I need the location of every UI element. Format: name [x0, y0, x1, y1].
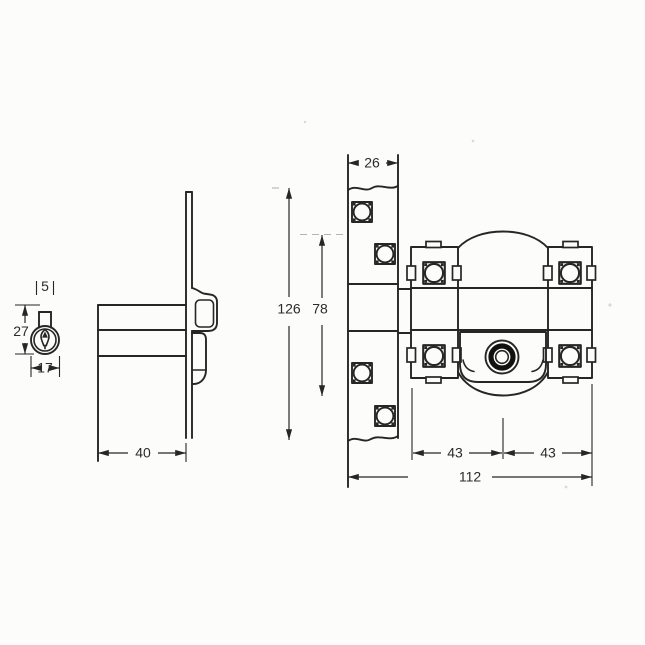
dimension-overall-height: 126 — [272, 188, 301, 440]
dimension-fixing-span: 78 — [300, 235, 345, 397]
right-mounting-bracket — [548, 247, 592, 378]
keyhole-icon — [41, 330, 49, 349]
fixing-plate — [348, 155, 398, 487]
bracket-slot — [407, 266, 416, 280]
bracket-tab — [426, 377, 441, 383]
dim-label-center-to-left: 43 — [447, 445, 463, 461]
front-view: 26 126 78 43 43 — [272, 155, 596, 488]
plate-screw-hole — [375, 406, 395, 426]
cylinder-face — [486, 341, 519, 374]
bracket-tab — [563, 242, 578, 248]
bracket-slot — [544, 266, 553, 280]
bracket-screw-hole — [423, 262, 445, 284]
lock-technical-drawing: 5 27 17 — [0, 0, 645, 645]
bracket-tab — [426, 242, 441, 248]
plate-break-bottom — [348, 436, 398, 441]
bracket-tab — [563, 377, 578, 383]
dim-label-stem-width: 5 — [41, 278, 49, 294]
cylinder-ring — [491, 346, 513, 368]
bracket-slot — [407, 348, 416, 362]
dim-label-overall-width: 112 — [459, 469, 482, 485]
dimension-case-depth: 40 — [98, 443, 186, 462]
keeper-box — [192, 288, 217, 331]
dimension-center-to-right: 43 — [504, 384, 592, 486]
bolt-guide-bracket — [192, 333, 206, 384]
dim-label-cylinder-height: 27 — [13, 323, 29, 339]
bracket-screw-hole — [559, 345, 581, 367]
left-mounting-bracket — [411, 247, 458, 378]
dim-label-cylinder-width: 17 — [37, 360, 53, 376]
dimension-stem-width: 5 — [37, 278, 54, 295]
bolt-stub — [398, 289, 411, 333]
mounting-plate-edge — [186, 192, 192, 438]
dimension-overall-width: 112 — [348, 469, 592, 485]
plate-break-top — [348, 186, 398, 190]
bracket-slot — [587, 348, 596, 362]
side-view: 5 27 17 — [13, 192, 217, 462]
bracket-screw-hole — [559, 262, 581, 284]
dimension-center-to-left: 43 — [412, 388, 503, 461]
dim-label-plate-width: 26 — [364, 155, 380, 171]
dim-label-center-to-right: 43 — [540, 445, 556, 461]
bracket-slot — [453, 266, 462, 280]
bracket-screw-hole — [423, 345, 445, 367]
escutcheon — [460, 332, 546, 382]
lock-body-front — [407, 232, 596, 396]
plate-screw-hole — [375, 244, 395, 264]
body-dome-bottom — [458, 372, 548, 396]
bracket-slot — [544, 348, 553, 362]
dimension-cylinder-width: 17 — [31, 356, 60, 377]
dim-label-fixing-span: 78 — [312, 301, 328, 317]
plate-screw-hole — [352, 363, 372, 383]
dim-label-case-depth: 40 — [135, 445, 151, 461]
body-dome-top — [458, 232, 548, 249]
bracket-slot — [587, 266, 596, 280]
lock-case-side — [98, 305, 186, 461]
cylinder-profile — [31, 312, 59, 354]
dimension-plate-width: 26 — [348, 155, 398, 171]
dim-label-overall-height: 126 — [277, 301, 301, 317]
plate-screw-hole — [352, 202, 372, 222]
